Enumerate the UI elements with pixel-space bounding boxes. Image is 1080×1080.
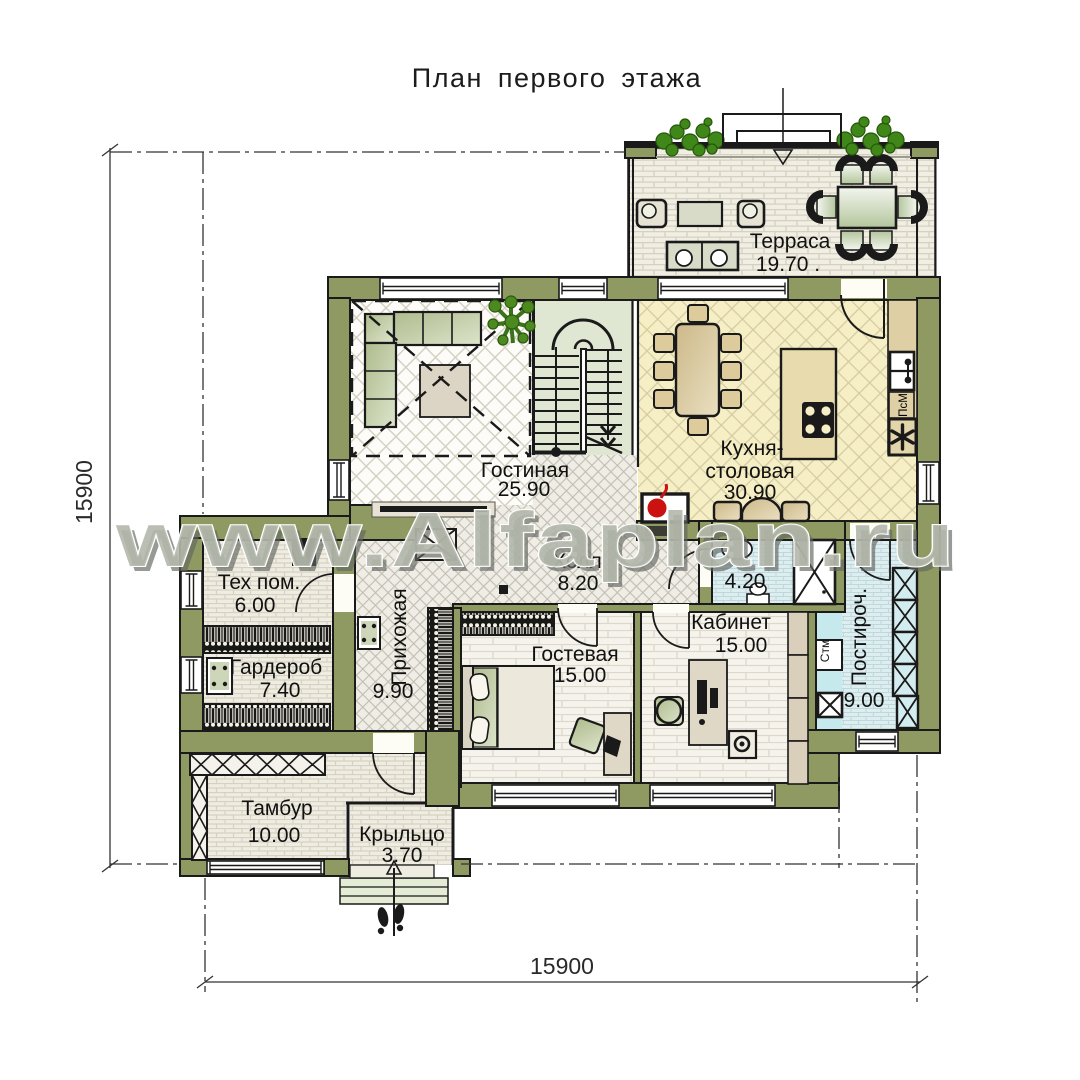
svg-text:6.00: 6.00	[235, 594, 276, 617]
svg-text:19.70 .: 19.70 .	[756, 253, 820, 276]
svg-text:Кабинет: Кабинет	[691, 611, 771, 634]
svg-text:Гостевая: Гостевая	[531, 643, 618, 666]
svg-text:9.90: 9.90	[373, 680, 414, 703]
svg-text:9.00: 9.00	[844, 689, 885, 712]
svg-text:Тамбур: Тамбур	[241, 797, 312, 820]
svg-text:15.00: 15.00	[554, 664, 607, 687]
svg-text:7.40: 7.40	[260, 679, 301, 702]
svg-text:столовая: столовая	[705, 460, 794, 483]
svg-text:15900: 15900	[530, 953, 594, 979]
svg-text:План первого этажа: План первого этажа	[412, 63, 702, 93]
svg-text:Прихожая: Прихожая	[388, 588, 411, 685]
svg-text:Терраса: Терраса	[750, 230, 831, 253]
svg-text:Кухня-: Кухня-	[720, 437, 783, 460]
svg-text:15900: 15900	[71, 460, 97, 524]
svg-text:Гардероб: Гардероб	[230, 656, 322, 679]
svg-text:10.00: 10.00	[248, 824, 301, 847]
svg-text:Стм: Стм	[818, 640, 832, 662]
svg-text:www.Alfaplan.ru: www.Alfaplan.ru	[115, 497, 957, 583]
svg-text:3.70: 3.70	[382, 844, 423, 867]
svg-text:ПсМ: ПсМ	[898, 393, 910, 417]
svg-text:15.00: 15.00	[715, 634, 768, 657]
svg-text:Крыльцо: Крыльцо	[359, 823, 445, 846]
svg-text:Постироч.: Постироч.	[848, 588, 871, 686]
